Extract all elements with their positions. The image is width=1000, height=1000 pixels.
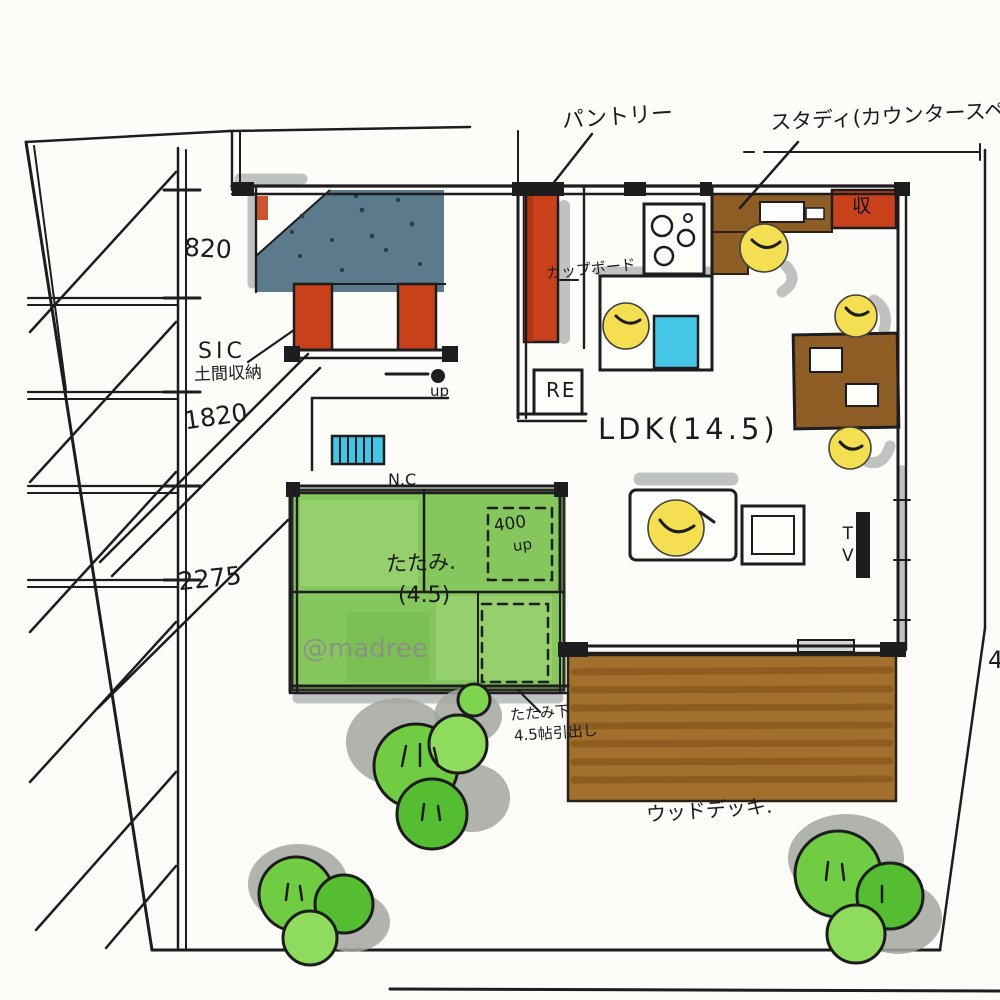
wood-deck: [568, 655, 896, 801]
ldk-label: LDK(14.5): [598, 414, 779, 444]
tv-unit: [856, 512, 870, 578]
wall-note-label: N.C: [388, 472, 416, 489]
floor-cushion: [648, 500, 704, 556]
entry-up-label: up: [430, 384, 449, 400]
laptop: [760, 202, 804, 222]
fridge-label: RE: [546, 380, 577, 401]
living-area: [630, 490, 870, 663]
tree-cluster-bottom-left: [248, 844, 390, 965]
tree-cluster-bottom-right: [788, 814, 942, 963]
floorplan-drawing: [0, 0, 1000, 1000]
edge-cutoff-label: 4: [988, 648, 1000, 673]
dim-2275: 2275: [177, 563, 243, 596]
tatami-label: たたみ.: [386, 551, 456, 575]
shoe-closet-right: [398, 284, 436, 350]
sic-storage-label: 土間収納: [194, 365, 263, 385]
shoe-closet-left: [294, 284, 332, 350]
storage-cabinet-label: 収: [852, 197, 871, 217]
hall-area: [312, 369, 448, 470]
tv-label: TV: [838, 524, 856, 568]
kitchen-area: [600, 204, 712, 370]
step-up-label: up: [512, 537, 533, 555]
kitchen-sink: [654, 316, 698, 368]
floorplan-sketch: パントリー スタディ(カウンタースペース). 820 1820 2275 SIC…: [0, 0, 1000, 1000]
kitchen-stool: [603, 303, 649, 349]
entry-area: [256, 190, 446, 350]
sic-label: SIC: [198, 340, 246, 363]
entry-step-dot: [431, 369, 445, 383]
watermark: @madree: [302, 636, 428, 663]
tatami-size-label: (4.5): [398, 584, 450, 607]
dim-820: 820: [183, 235, 232, 264]
tree-cluster-center: [346, 684, 510, 849]
